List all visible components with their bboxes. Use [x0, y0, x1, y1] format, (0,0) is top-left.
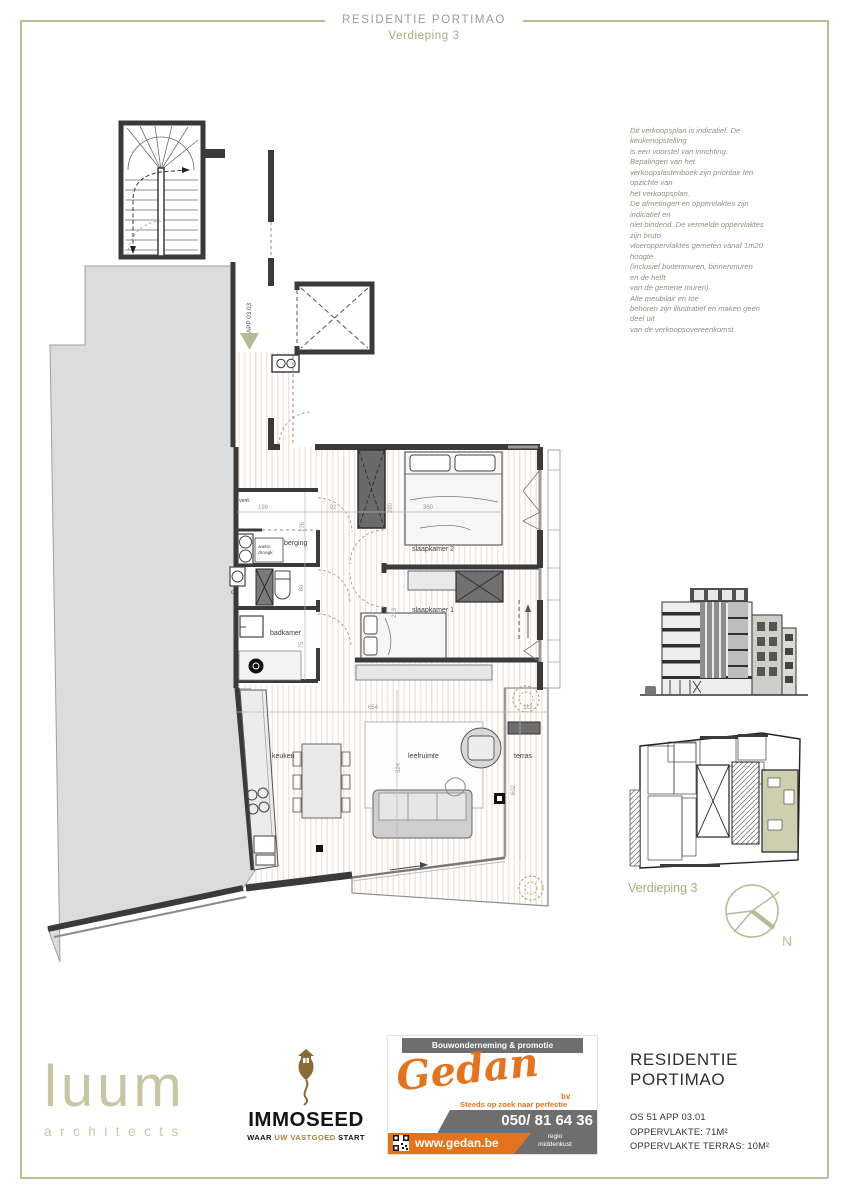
app-label: APP 03.03	[246, 303, 253, 333]
immoseed-wordmark: IMMOSEED	[236, 1108, 376, 1132]
luum-architects-label: architects	[44, 1124, 224, 1139]
floor-plan: APP 03.03	[40, 105, 570, 985]
building-elevation	[635, 580, 815, 710]
dim-524: 524	[396, 762, 402, 773]
project-terrace-area: OPPERVLAKTE TERRAS: 10M²	[630, 1139, 820, 1153]
frame-left	[20, 20, 22, 1178]
dim-75: 75	[299, 641, 305, 648]
gedan-ad: Bouwonderneming & promotie Gedan bv Stee…	[387, 1035, 598, 1155]
immoseed-tag-vastgoed: UW VASTGOED	[274, 1133, 335, 1142]
label-vent: vent.	[239, 498, 250, 504]
gedan-website: www.gedan.be	[415, 1136, 499, 1150]
immoseed-tag-waar: WAAR	[247, 1133, 274, 1142]
bed-2	[405, 452, 502, 545]
project-title-line1: RESIDENTIE	[630, 1050, 820, 1070]
dim-213: 213	[392, 607, 398, 618]
label-keuken: keuken	[272, 753, 295, 760]
gedan-phone: 050/ 81 64 36	[448, 1112, 593, 1129]
gedan-tagline: Steeds op zoek naar perfectie	[460, 1100, 590, 1109]
luum-logo: luum architects	[44, 1058, 224, 1139]
immoseed-logo: IMMOSEED WAAR UW VASTGOED START	[236, 1046, 376, 1142]
dim-654: 654	[368, 705, 379, 711]
dim-360: 360	[423, 505, 434, 511]
label-wasm2: droogk	[258, 550, 273, 556]
frame-right	[827, 20, 829, 1178]
compass-n-label: N	[782, 933, 792, 949]
elevator-shaft	[297, 284, 372, 352]
immoseed-seed-icon	[284, 1046, 328, 1106]
label-terras: terras	[514, 753, 532, 760]
dim-112: 112	[523, 705, 533, 711]
neighbour-roof	[48, 266, 257, 962]
dim-176: 176	[300, 521, 306, 532]
project-ref: OS 51 APP 03.01	[630, 1110, 820, 1124]
duct-shaft	[358, 450, 385, 528]
page-title: RESIDENTIE PORTIMAO	[0, 14, 848, 26]
disclaimer-text: Dit verkoopsplan is indicatief. De keuke…	[630, 126, 808, 335]
site-key-plan	[625, 730, 805, 880]
frame-bottom	[20, 1177, 828, 1179]
label-slaapkamer2: slaapkamer 2	[412, 546, 454, 553]
dim-80: 80	[299, 584, 305, 591]
label-cv: CV	[231, 590, 239, 596]
dim-602: 602	[511, 784, 517, 795]
project-title-line2: PORTIMAO	[630, 1070, 820, 1090]
dim-92: 92	[330, 505, 337, 511]
label-badkamer: badkamer	[270, 630, 302, 637]
keyplan-floor-label: Verdieping 3	[628, 881, 698, 895]
immoseed-tag-start: START	[336, 1133, 365, 1142]
label-slaapkamer1: slaapkamer 1	[412, 607, 454, 614]
immoseed-tagline: WAAR UW VASTGOED START	[236, 1133, 376, 1142]
floor-hall-top	[237, 447, 293, 490]
entrance-arrow	[240, 333, 259, 350]
staircase	[121, 123, 203, 257]
label-berging: berging	[284, 540, 307, 547]
dim-280: 280	[388, 502, 394, 513]
gedan-qr-code	[393, 1135, 409, 1151]
wall-stub-top	[203, 149, 225, 158]
page-subtitle: Verdieping 3	[0, 30, 848, 42]
project-area: OPPERVLAKTE: 71M²	[630, 1125, 820, 1139]
project-info: RESIDENTIE PORTIMAO OS 51 APP 03.01 OPPE…	[630, 1050, 820, 1153]
luum-wordmark: luum	[44, 1058, 224, 1116]
dim-199: 199	[258, 505, 269, 511]
plan-page: RESIDENTIE PORTIMAO Verdieping 3 Dit ver…	[0, 0, 848, 1200]
intercom	[272, 355, 299, 372]
label-wasm1: wasm	[258, 545, 271, 550]
label-leefruimte: leefruimte	[408, 753, 439, 760]
compass: N	[715, 878, 810, 963]
